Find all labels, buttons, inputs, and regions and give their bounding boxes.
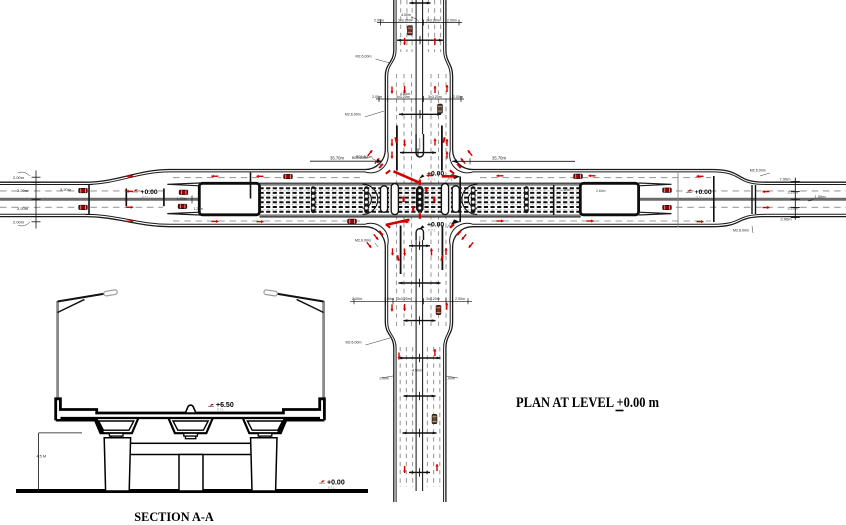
svg-text:M2.6.00m: M2.6.00m — [346, 341, 362, 345]
svg-text:1.00m: 1.00m — [384, 297, 394, 301]
svg-text:P.T.L: P.T.L — [217, 408, 224, 412]
svg-text:M2.6.00m: M2.6.00m — [733, 229, 749, 233]
svg-text:2.00m: 2.00m — [13, 175, 25, 180]
svg-text:3x3.20m: 3x3.20m — [426, 18, 440, 22]
svg-text:1.50m: 1.50m — [561, 188, 571, 192]
svg-text:PLAN AT LEVEL +0.00 m: PLAN AT LEVEL +0.00 m — [516, 395, 660, 411]
svg-text:P.T.L: P.T.L — [142, 196, 150, 200]
svg-text:A: A — [446, 173, 453, 183]
svg-text:2.00m: 2.00m — [13, 220, 25, 225]
svg-text:3.20m: 3.20m — [60, 187, 72, 192]
svg-text:3x3.20m: 3x3.20m — [397, 297, 411, 301]
svg-text:35.70m: 35.70m — [330, 156, 344, 161]
svg-text:1.00m: 1.00m — [379, 377, 389, 381]
svg-text:M2.6.00m: M2.6.00m — [750, 169, 766, 173]
svg-text:P.T.L: P.T.L — [328, 486, 335, 490]
svg-text:2.00m: 2.00m — [455, 297, 465, 301]
svg-text:2.00m: 2.00m — [447, 18, 457, 22]
svg-text:2.00m: 2.00m — [374, 18, 384, 22]
svg-text:3.20m: 3.20m — [17, 188, 29, 193]
svg-text:P.T.L: P.T.L — [428, 177, 436, 181]
svg-text:7.00m: 7.00m — [780, 177, 792, 182]
svg-text:1.00m: 1.00m — [815, 194, 827, 199]
svg-text:2.00m: 2.00m — [781, 216, 793, 221]
svg-text:3.20m: 3.20m — [788, 207, 799, 211]
svg-text:35.70m: 35.70m — [492, 155, 506, 160]
svg-text:M2.6.00m: M2.6.00m — [355, 239, 371, 243]
svg-text:4.5 M: 4.5 M — [37, 455, 47, 459]
svg-text:2.64m: 2.64m — [596, 189, 606, 193]
svg-text:2.00m: 2.00m — [453, 95, 463, 99]
svg-text:4.50m: 4.50m — [401, 13, 411, 17]
svg-text:1.20m: 1.20m — [194, 207, 203, 211]
svg-text:4.50m: 4.50m — [400, 92, 410, 96]
svg-text:3x3.20m: 3x3.20m — [426, 297, 440, 301]
svg-text:3x3.20m: 3x3.20m — [398, 18, 412, 22]
svg-text:3.20m: 3.20m — [788, 191, 799, 195]
svg-text:P.T.L: P.T.L — [428, 228, 436, 232]
svg-text:M2.6.00m: M2.6.00m — [356, 55, 372, 59]
svg-text:3.20m: 3.20m — [17, 206, 29, 211]
svg-text:2.00m: 2.00m — [352, 297, 362, 301]
svg-text:4.50m: 4.50m — [412, 369, 422, 373]
svg-text:B03.600m: B03.600m — [352, 156, 368, 160]
svg-text:SECTION A-A: SECTION A-A — [134, 510, 214, 524]
svg-text:3x3.20m: 3x3.20m — [428, 95, 442, 99]
svg-text:M2.6.00m: M2.6.00m — [345, 113, 361, 117]
svg-text:1.00m: 1.00m — [177, 197, 187, 201]
svg-text:P.T.L: P.T.L — [696, 196, 704, 200]
svg-text:2.00m: 2.00m — [372, 95, 382, 99]
